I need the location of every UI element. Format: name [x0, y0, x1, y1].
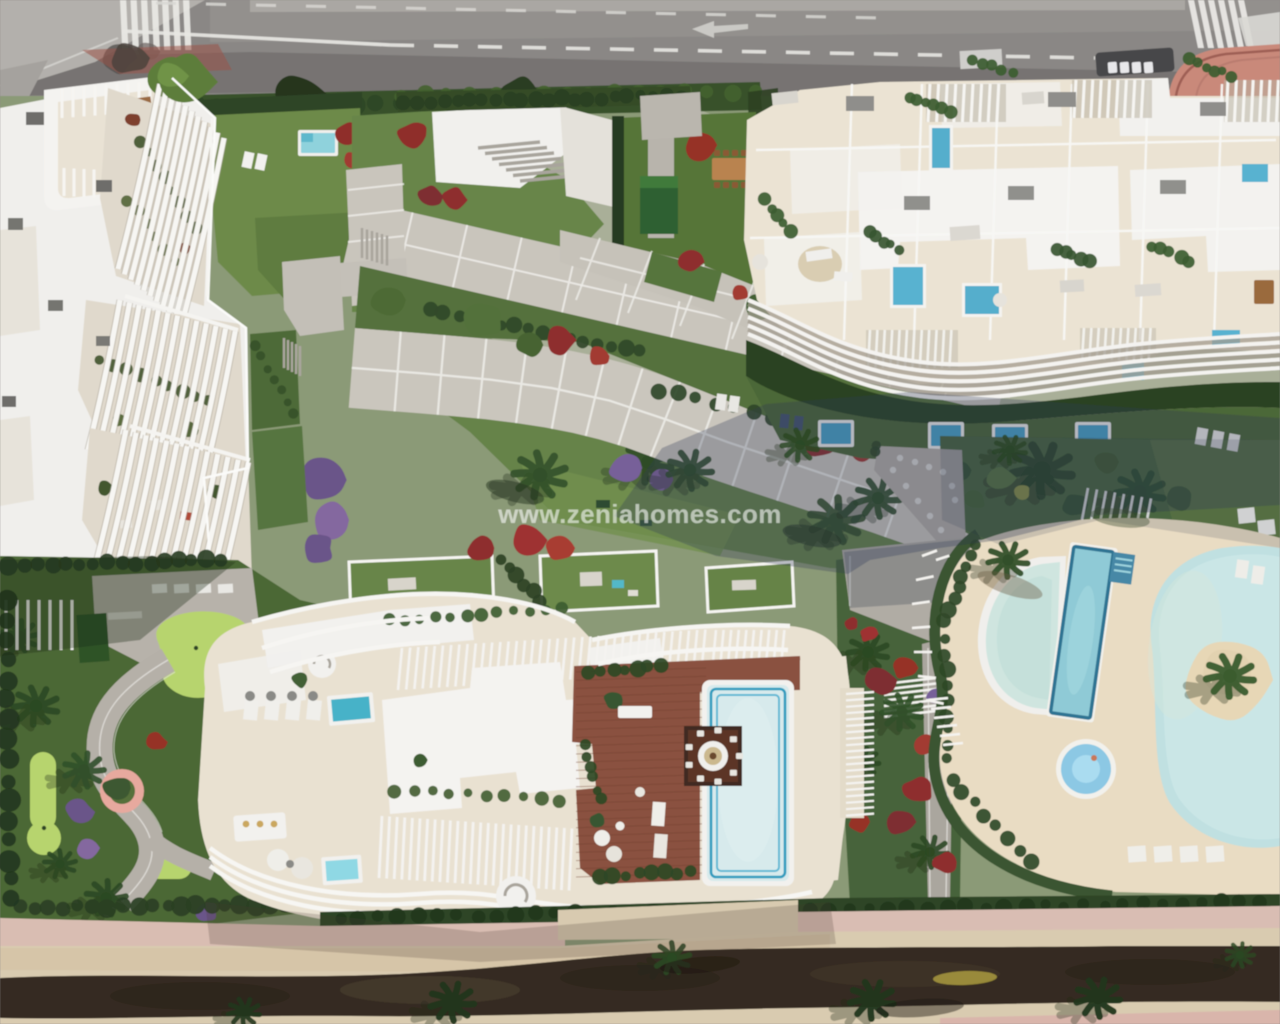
svg-text:www.zeniahomes.com: www.zeniahomes.com: [497, 499, 782, 529]
